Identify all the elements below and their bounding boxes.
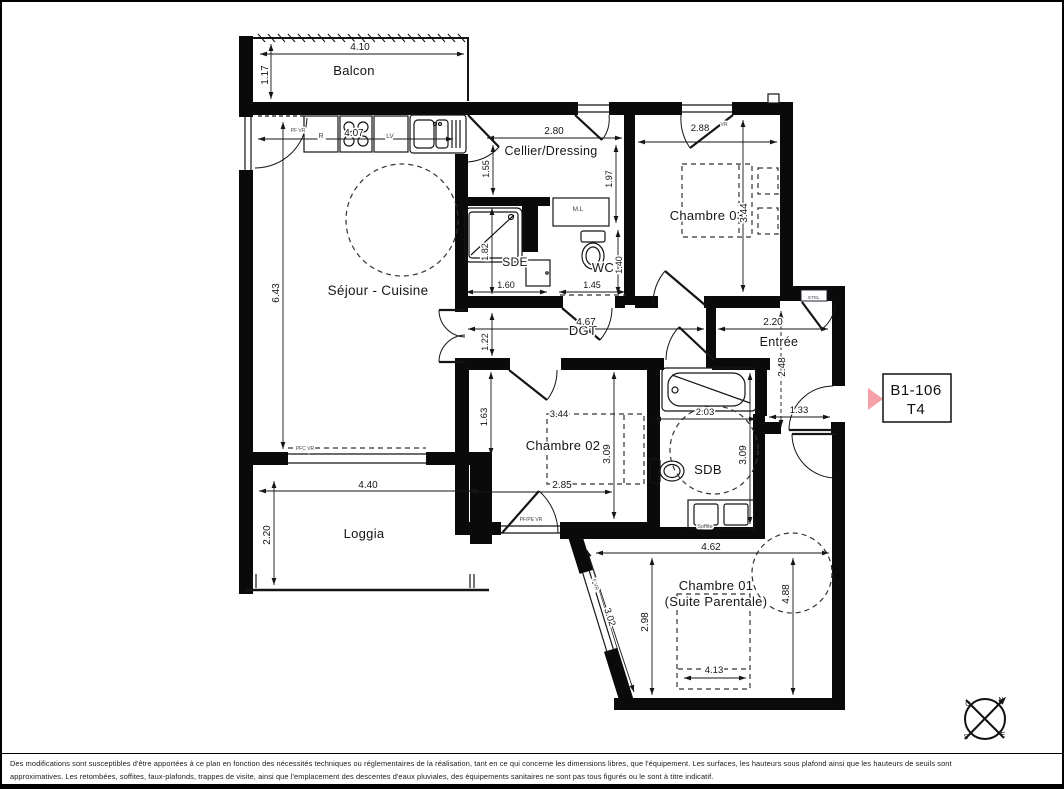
wall [242, 102, 578, 115]
wall [239, 36, 253, 102]
dim-label-1-33: 1.33 [790, 405, 809, 416]
chambre02-window [501, 526, 560, 533]
dim-label-2-88: 2.88 [691, 123, 710, 134]
room-label-chambre-02: Chambre 02 [526, 438, 601, 453]
dim-label-1-97: 1.97 [604, 170, 614, 188]
wall [242, 452, 288, 465]
dim-label-3-09: 3.09 [602, 444, 613, 464]
compass-south: S [964, 734, 969, 741]
dim-label-2-85: 2.85 [552, 480, 572, 491]
room-label-cellier-dressing: Cellier/Dressing [504, 144, 597, 158]
annot-label-r: R [318, 133, 323, 140]
cellier-door [468, 115, 499, 162]
annot-label-soffite: Soffite [697, 524, 713, 530]
room-label-wc: WC [592, 260, 614, 275]
wall [561, 358, 664, 370]
room-label-suite-parentale: (Suite Parentale) [665, 594, 768, 609]
room-label-loggia: Loggia [344, 526, 385, 541]
dim-label-2-20: 2.20 [763, 317, 783, 328]
dim-label-4-67: 4.67 [576, 317, 596, 328]
wall [832, 301, 845, 386]
thin-lines-layer [245, 34, 827, 590]
dim-label-4-40: 4.40 [358, 480, 378, 491]
dim-label-3-44: 3.44 [739, 203, 750, 223]
room-label-balcon: Balcon [333, 63, 375, 78]
room-label-s-jour-cuisine: Séjour - Cuisine [328, 283, 429, 298]
sde-washbasin [526, 260, 550, 286]
wall [624, 115, 635, 305]
compass: O N S E [964, 697, 1006, 741]
annot-label-m-l: M.L [573, 206, 584, 213]
entree-closet-door [802, 302, 835, 329]
annot-label-pf-vr: PF VR [291, 128, 306, 134]
shower [465, 208, 522, 262]
dim-label-4-88: 4.88 [781, 584, 792, 604]
dim-label-1-22: 1.22 [480, 333, 490, 351]
wall [239, 102, 253, 117]
unit-code: B1-106 [890, 382, 941, 399]
chambre03-door [653, 271, 705, 305]
wall [469, 522, 501, 535]
dim-label-3-09: 3.09 [738, 445, 749, 465]
sejour-double-door [439, 310, 465, 362]
kitchen-sink [410, 115, 466, 153]
wall-notch [768, 94, 779, 103]
wall [455, 197, 550, 206]
bathtub [662, 368, 756, 411]
disclaimer-line-2: approximatives. Les retombées, soffites,… [10, 771, 1054, 784]
disclaimer-line-1: Des modifications sont susceptibles d'êt… [10, 758, 1054, 771]
wall [239, 170, 253, 462]
dim-label-4-13: 4.13 [705, 665, 724, 676]
wall [832, 429, 845, 710]
sheet-bottom-bar [2, 784, 1062, 789]
dim-label-1-40: 1.40 [614, 256, 624, 274]
table-clearance-circle [346, 164, 458, 276]
dim-label-2-20: 2.20 [262, 525, 273, 545]
dim-label-2-80: 2.80 [544, 126, 564, 137]
room-label-sde: SDE [502, 255, 528, 269]
dim-label-1-45: 1.45 [583, 280, 601, 290]
floor-plan: BalconSéjour - CuisineCellier/DressingSD… [2, 2, 1064, 754]
chambre01-door [792, 434, 836, 478]
wall [455, 296, 563, 308]
loggia-posts [252, 574, 474, 588]
compass-east: E [1001, 732, 1006, 739]
wall [755, 366, 767, 416]
wall [635, 296, 658, 308]
dim-label-4-07: 4.07 [344, 128, 364, 139]
chambre03-window [681, 105, 733, 112]
room-label-chambre-01: Chambre 01 [679, 578, 754, 593]
wall [455, 370, 469, 535]
compass-west: O [965, 701, 971, 708]
dim-label-3-44: 3.44 [550, 409, 569, 420]
doors-layer [255, 115, 836, 533]
wall [609, 102, 682, 115]
room-label-chambre-03: Chambre 03 [670, 208, 745, 223]
chambre02-door [509, 370, 557, 400]
dim-label-1-60: 1.60 [497, 280, 515, 290]
wall [647, 370, 660, 539]
dim-label-1-55: 1.55 [481, 160, 491, 178]
compass-north: N [998, 697, 1003, 704]
wall [780, 102, 793, 296]
fixtures-layer [304, 115, 756, 529]
dim-label-4-62: 4.62 [701, 542, 721, 553]
bed-chambre03 [682, 164, 778, 237]
dim-label-1-63: 1.63 [479, 408, 490, 427]
wall [615, 296, 625, 308]
unit-label-box: B1-106 T4 [868, 374, 951, 422]
dim-label-6-43: 6.43 [271, 283, 282, 303]
cellier-window [575, 105, 609, 112]
disclaimer: Des modifications sont susceptibles d'êt… [2, 753, 1062, 784]
wall [522, 206, 538, 252]
room-label-entr-e: Entrée [760, 335, 799, 349]
annot-label-lv: LV [386, 133, 394, 140]
wall [753, 414, 765, 539]
room-label-sdb: SDB [694, 462, 722, 477]
annot-label-etel: ETEL [808, 295, 820, 300]
annot-label-pfc-vr: PFC VR [296, 446, 315, 452]
sejour-loggia-window [288, 454, 426, 463]
dim-label-2-03: 2.03 [696, 407, 715, 418]
dim-label-1-17: 1.17 [260, 65, 271, 85]
dim-label-1-82: 1.82 [480, 243, 490, 261]
cellier-window-swing [575, 115, 609, 140]
dim-label-2-98: 2.98 [640, 612, 651, 632]
annot-label-vr: VR [721, 122, 728, 128]
dim-label-4-10: 4.10 [350, 42, 370, 53]
unit-type: T4 [907, 401, 926, 418]
wall [765, 422, 781, 434]
balcony-door [255, 116, 307, 168]
chambre02-window-swing [502, 491, 558, 533]
unit-pointer-icon [868, 388, 883, 410]
wall [455, 358, 510, 370]
wall [831, 422, 845, 434]
wall [614, 698, 845, 710]
wall [239, 457, 253, 594]
balcony-door-window [245, 117, 251, 170]
dim-label-2-48: 2.48 [777, 357, 788, 377]
annot-label-pf-pe-vr: PF/PE VR [520, 517, 543, 523]
floor-plan-sheet: BalconSéjour - CuisineCellier/DressingSD… [0, 0, 1064, 789]
